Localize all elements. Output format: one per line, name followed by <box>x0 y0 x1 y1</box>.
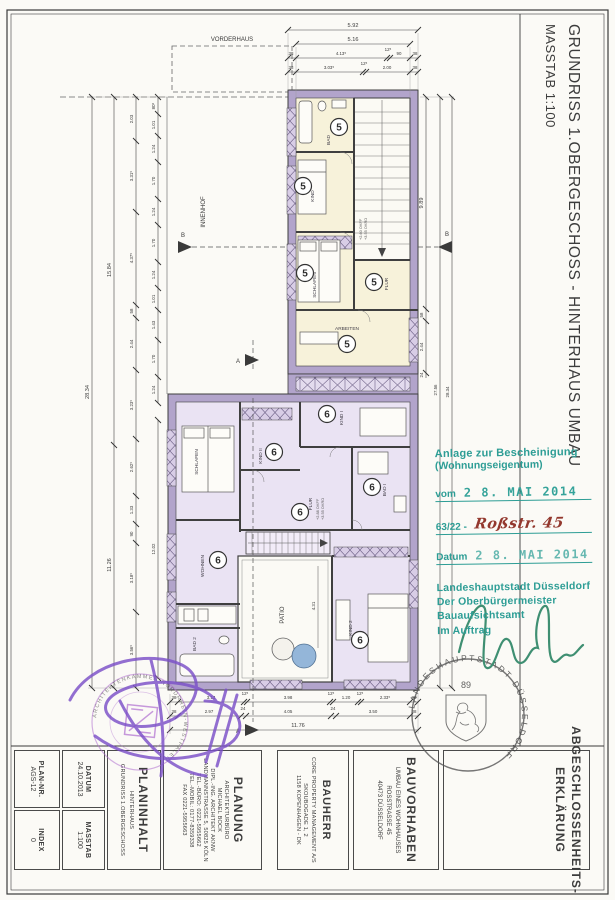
drawing-title: GRUNDRISS 1.OBERGESCHOSS - HINTERHAUS UM… <box>564 24 582 467</box>
room-label: SCHLAFEN <box>194 449 200 475</box>
svg-text:12⁵: 12⁵ <box>242 691 249 696</box>
authority-block: Landeshauptstadt Düsseldorf Der Oberbürg… <box>437 579 594 638</box>
planung-line: FAX 0221-5955663 <box>180 784 187 835</box>
masstab-value: 1:100 <box>76 831 83 849</box>
bauvorhaben-line: ROSSTRASSE 45 <box>383 785 391 834</box>
svg-text:12⁵: 12⁵ <box>357 691 364 696</box>
svg-text:38: 38 <box>289 65 294 70</box>
bauherr-line: 1158 KOPENHAGEN - DK <box>294 775 301 845</box>
svg-text:38: 38 <box>413 51 418 56</box>
patio-table-icon <box>272 638 294 660</box>
desk-icon <box>300 332 338 344</box>
planung-line: ARCHITEKTURBÜRO <box>222 781 229 840</box>
patio-dim: 4.31 <box>311 601 316 610</box>
svg-text:3.18⁵: 3.18⁵ <box>129 573 134 584</box>
room-label: KIND I <box>339 411 345 425</box>
titleblock-bauherr: BAUHERR CORE PROPERTY MANAGEMENT A/S SKO… <box>277 750 349 870</box>
titleblock-index: INDEX 0 <box>14 810 60 870</box>
svg-text:2.00: 2.00 <box>383 65 392 70</box>
drawing-scale: MASSTAB 1:100 <box>543 24 558 128</box>
svg-text:3.23⁵: 3.23⁵ <box>129 400 134 411</box>
unit-badge-5: 5 <box>371 278 377 289</box>
apartment-5: 5 BAD 5 KIND 5 FLUR 5 SCHLAFEN 5 ARBEITE… <box>287 90 418 374</box>
bauvorhaben-line: UMBAU EINES WOHNHAUSES <box>392 767 400 854</box>
bauherr-line: CORE PROPERTY MANAGEMENT A/S <box>310 757 317 863</box>
section-b-label: B <box>181 233 185 239</box>
vom-label: vom <box>435 489 456 500</box>
svg-text:2.44: 2.44 <box>419 342 424 351</box>
svg-text:3.50: 3.50 <box>369 709 378 714</box>
svg-text:1.43: 1.43 <box>151 320 156 329</box>
svg-text:58: 58 <box>129 308 134 313</box>
svg-text:1.20: 1.20 <box>342 695 351 700</box>
apartment-6: PATIO 4.31 <box>167 394 418 690</box>
svg-text:1.24: 1.24 <box>151 270 156 279</box>
svg-text:9.89: 9.89 <box>419 198 425 209</box>
patio-pool-icon <box>292 644 316 668</box>
planung-line: LANDMANNSTRASSE 5, 50825 KÖLN <box>201 758 208 861</box>
titleblock-planinhalt: PLANINHALT HINTERHAUS GRUNDRISS 1.OBERGE… <box>107 750 161 870</box>
vom-row: vom 2 8. MAI 2014 <box>435 484 591 502</box>
plannr-value: AGS-12 <box>30 767 37 792</box>
sink-icon <box>332 100 346 108</box>
svg-text:90: 90 <box>129 531 134 536</box>
certification-line2: (Wohnungseigentum) <box>435 458 591 472</box>
room-label: SCHLAFEN <box>312 272 318 298</box>
bauvorhaben-label: BAUVORHABEN <box>404 757 418 863</box>
room-label: BAD I <box>382 484 388 497</box>
bed-icon <box>360 408 406 436</box>
svg-text:38: 38 <box>413 65 418 70</box>
toilet-icon <box>318 101 326 111</box>
titleblock-plannr: PLAN-NR. AGS-12 <box>14 750 60 808</box>
sheet-title-block: GRUNDRISS 1.OBERGESCHOSS - HINTERHAUS UM… <box>518 24 588 484</box>
bauherr-label: BAUHERR <box>320 780 332 841</box>
svg-text:1.70: 1.70 <box>151 176 156 185</box>
toilet-icon <box>219 636 229 644</box>
level-note: +3.55 OKRD <box>363 218 368 240</box>
planinhalt-line: HINTERHAUS <box>127 791 134 829</box>
svg-text:4.13⁵: 4.13⁵ <box>336 51 347 56</box>
unit-badge-6: 6 <box>357 636 363 647</box>
authority-line: Im Auftrag <box>437 621 593 637</box>
svg-text:28.34: 28.34 <box>85 385 91 399</box>
room-label: FLUR <box>384 277 390 290</box>
svg-text:90: 90 <box>397 51 402 56</box>
room-label: KIND 2 <box>348 620 354 636</box>
svg-text:11.26: 11.26 <box>107 558 113 572</box>
unit-badge-6: 6 <box>369 483 375 494</box>
svg-text:58: 58 <box>419 312 424 317</box>
plannr-label: PLAN-NR. <box>38 761 45 798</box>
sink-icon <box>394 496 406 512</box>
site-context: VORDERHAUS INNENHOF <box>60 37 292 394</box>
unit-badge-5: 5 <box>336 123 342 134</box>
svg-text:3.31⁵: 3.31⁵ <box>129 171 134 182</box>
svg-text:3.98: 3.98 <box>284 695 293 700</box>
bauherr-line: SKOUBOGADE 1, 2 <box>302 783 309 837</box>
svg-text:2.03: 2.03 <box>129 114 134 123</box>
level-note: +3.55 OKRD <box>320 498 325 520</box>
datum-value: 24.10.2013 <box>76 761 83 796</box>
svg-text:12.02: 12.02 <box>151 543 156 555</box>
room-label: WOHNEN <box>200 555 206 577</box>
authority-line: Landeshauptstadt Düsseldorf <box>437 579 593 595</box>
svg-text:24: 24 <box>419 372 424 377</box>
svg-text:80⁵: 80⁵ <box>151 102 156 109</box>
vom-date-stamp: 2 8. MAI 2014 <box>464 484 578 500</box>
drawing-sheet: VORDERHAUS INNENHOF <box>0 0 615 900</box>
separation-wall-band <box>288 374 418 394</box>
unit-badge-6: 6 <box>324 410 330 421</box>
svg-text:1.24: 1.24 <box>151 385 156 394</box>
planung-label: PLANUNG <box>231 777 245 843</box>
svg-text:38: 38 <box>412 709 417 714</box>
svg-text:12⁵: 12⁵ <box>328 691 335 696</box>
svg-text:4.37⁵: 4.37⁵ <box>129 253 134 264</box>
datum-row: Datum 2 8. MAI 2014 <box>436 547 592 565</box>
planung-line: TEL.-MOBIL: 0177-8359338 <box>187 772 194 847</box>
svg-text:3.13: 3.13 <box>207 695 216 700</box>
desk-icon <box>336 600 350 640</box>
datum-label: DATUM <box>84 766 91 793</box>
svg-text:38: 38 <box>289 51 294 56</box>
svg-text:1.70: 1.70 <box>151 238 156 247</box>
svg-text:11.76: 11.76 <box>291 723 305 729</box>
unit-badge-6: 6 <box>297 508 303 519</box>
patio-label: PATIO <box>280 606 286 623</box>
patio: PATIO 4.31 <box>238 556 332 682</box>
titleblock-abgeschlossenheit: ABGESCHLOSSENHEITS- ERKLÄRUNG <box>443 750 590 870</box>
datum-stamp-label: Datum <box>436 552 467 563</box>
section-a-label: A <box>236 359 240 365</box>
titleblock-masstab: MASSTAB 1:100 <box>62 810 105 870</box>
file-ref: 63/22 - <box>436 522 467 533</box>
certification-stamp: Anlage zur Bescheinigung (Wohnungseigent… <box>435 446 594 638</box>
unit-badge-6: 6 <box>215 556 221 567</box>
svg-text:4.05: 4.05 <box>284 709 293 714</box>
wardrobe-icon <box>358 452 388 474</box>
room-label: BAD <box>326 135 332 145</box>
bauvorhaben-line: 40473 DÜSSELDORF <box>374 780 382 839</box>
svg-text:1.01: 1.01 <box>151 294 156 303</box>
svg-text:12⁵: 12⁵ <box>385 47 392 52</box>
svg-text:2.62⁵: 2.62⁵ <box>129 462 134 473</box>
unit-badge-5: 5 <box>302 269 308 280</box>
bed-icon <box>368 594 408 662</box>
svg-text:3.03⁵: 3.03⁵ <box>324 65 335 70</box>
svg-text:12⁵: 12⁵ <box>361 61 368 66</box>
svg-text:15.84: 15.84 <box>107 263 113 277</box>
svg-text:38: 38 <box>172 709 177 714</box>
vorderhaus-label: VORDERHAUS <box>211 37 253 43</box>
unit-badge-5: 5 <box>344 340 350 351</box>
titleblock-bauvorhaben: BAUVORHABEN UMBAU EINES WOHNHAUSES ROSST… <box>353 750 439 870</box>
svg-text:1.33: 1.33 <box>129 505 134 514</box>
planung-line: DIPL.-ING. ARCHITEKT AKNW <box>208 768 215 851</box>
bathtub-icon <box>299 101 312 143</box>
planung-line: TEL.-BÜRO: 0221-5955662 <box>194 773 201 847</box>
abgeschlossenheit-line: ERKLÄRUNG <box>553 767 567 853</box>
titleblock-datum: DATUM 24.10.2013 <box>62 750 105 808</box>
titleblock-planung: PLANUNG ARCHITEKTURBÜRO MICHAEL BOCK DIP… <box>163 750 262 870</box>
stair-apartment6 <box>246 532 330 554</box>
abgeschlossenheit-line: ABGESCHLOSSENHEITS- <box>569 726 583 894</box>
file-ref-row: 63/22 - Roßstr. 45 <box>436 514 592 535</box>
svg-text:3.56⁵: 3.56⁵ <box>129 645 134 656</box>
svg-text:2.97: 2.97 <box>205 709 214 714</box>
svg-text:24: 24 <box>241 706 246 711</box>
bathtub-icon <box>180 654 234 676</box>
svg-text:1.24: 1.24 <box>151 207 156 216</box>
unit-badge-6: 6 <box>271 448 277 459</box>
index-label: INDEX <box>38 828 45 851</box>
room-label: KIND <box>310 190 316 202</box>
section-b-label: B <box>445 232 449 238</box>
svg-text:1.24: 1.24 <box>151 144 156 153</box>
index-value: 0 <box>30 838 37 842</box>
room-label: BAD 2 <box>192 637 198 651</box>
planung-line: MICHAEL BOCK <box>215 788 222 832</box>
handwritten-street: Roßstr. 45 <box>474 514 565 532</box>
svg-text:2.33⁵: 2.33⁵ <box>380 695 391 700</box>
planinhalt-label: PLANINHALT <box>136 767 150 853</box>
innenhof-label: INNENHOF <box>201 196 207 228</box>
datum-date-stamp: 2 8. MAI 2014 <box>475 547 589 563</box>
svg-text:24: 24 <box>331 706 336 711</box>
svg-text:38: 38 <box>412 695 417 700</box>
svg-text:5.16: 5.16 <box>348 37 359 43</box>
certification-line1: Anlage zur Bescheinigung <box>435 446 591 460</box>
svg-text:1.70: 1.70 <box>151 354 156 363</box>
svg-text:38: 38 <box>172 695 177 700</box>
svg-text:5.92: 5.92 <box>348 23 359 29</box>
unit-badge-5: 5 <box>300 182 306 193</box>
masstab-label: MASSTAB <box>84 822 91 859</box>
svg-text:28.34: 28.34 <box>445 386 450 398</box>
planinhalt-line: GRUNDRISS 1.OBERGESCHOSS <box>118 764 125 856</box>
svg-text:27.56: 27.56 <box>433 384 438 396</box>
svg-text:1.01: 1.01 <box>151 120 156 129</box>
room-label: KIND II <box>258 448 264 463</box>
svg-text:2.44: 2.44 <box>129 339 134 348</box>
room-label: FLUR <box>308 497 314 510</box>
room-label: ARBEITEN <box>335 326 360 332</box>
